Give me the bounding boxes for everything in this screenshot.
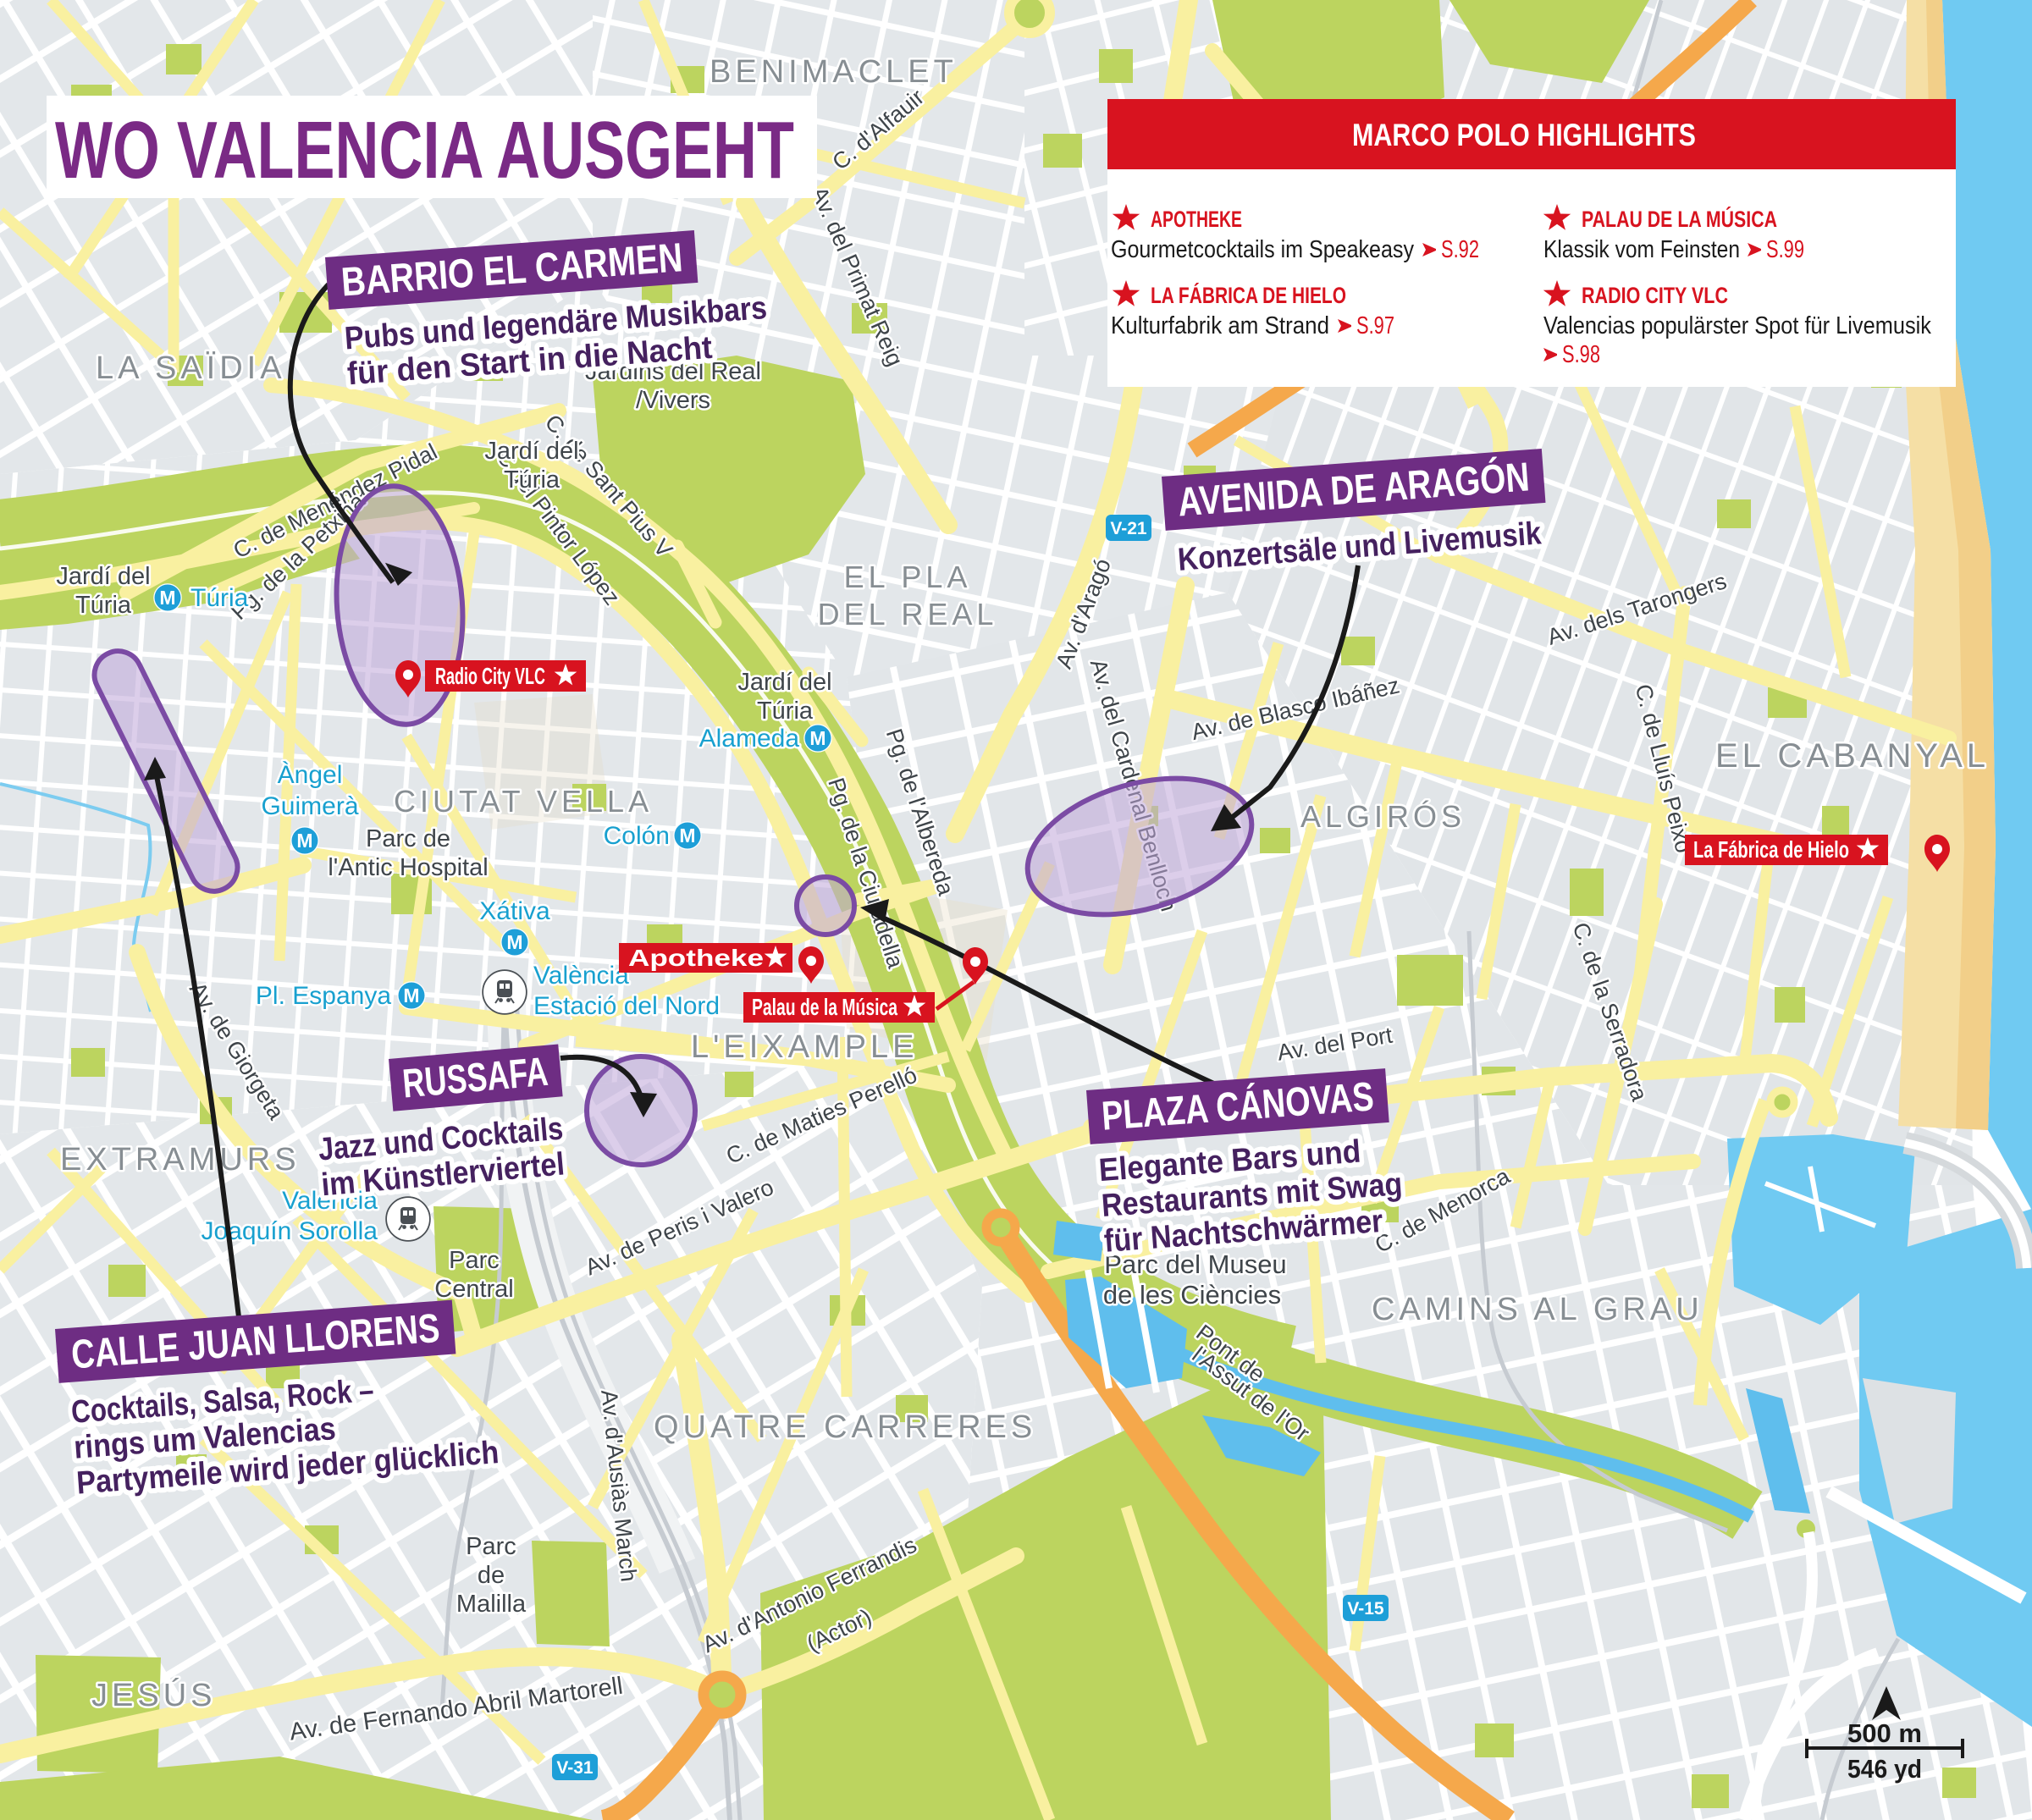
svg-text:LA SAÏDIA: LA SAÏDIA [96,350,286,386]
svg-text:Túria: Túria [190,584,249,612]
svg-text:CAMINS AL GRAU: CAMINS AL GRAU [1372,1292,1703,1327]
svg-text:Kulturfabrik am Strand: Kulturfabrik am Strand [1111,312,1329,339]
svg-text:APOTHEKE: APOTHEKE [1151,207,1242,232]
svg-text:Parc de: Parc de [366,825,450,852]
svg-text:La Fábrica de Hielo: La Fábrica de Hielo [1693,836,1849,863]
svg-text:Klassik vom Feinsten: Klassik vom Feinsten [1543,236,1740,263]
svg-text:Túria: Túria [757,698,814,725]
svg-text:S.97: S.97 [1356,312,1394,339]
svg-text:Valencias populärster Spot für: Valencias populärster Spot für Livemusik [1543,312,1931,339]
svg-text:Túria: Túria [504,466,560,494]
svg-text:QUATRE CARRERES: QUATRE CARRERES [654,1409,1036,1445]
svg-text:Estació del Nord: Estació del Nord [533,992,720,1020]
svg-text:Central: Central [434,1276,514,1303]
svg-text:Xátiva: Xátiva [479,897,550,925]
svg-text:Parc: Parc [449,1247,500,1274]
svg-text:546 yd: 546 yd [1847,1754,1922,1784]
svg-text:EL PLA: EL PLA [844,560,972,594]
svg-text:de: de [478,1562,505,1589]
svg-text:EXTRAMURS: EXTRAMURS [60,1142,301,1177]
svg-text:l'Antic Hospital: l'Antic Hospital [328,854,488,881]
svg-text:Túria: Túria [75,592,132,619]
svg-text:500 m: 500 m [1847,1718,1922,1748]
svg-text:Jardí del: Jardí del [737,669,831,696]
svg-text:CIUTAT VELLA: CIUTAT VELLA [394,784,653,819]
svg-text:V-21: V-21 [1110,519,1147,538]
svg-text:V-15: V-15 [1347,1599,1384,1619]
svg-text:Pl. Espanya: Pl. Espanya [256,982,391,1010]
svg-text:Malilla: Malilla [456,1591,527,1618]
svg-text:EL CABANYAL: EL CABANYAL [1715,737,1990,775]
svg-text:BENIMACLET: BENIMACLET [710,54,958,90]
svg-text:LA FÁBRICA DE HIELO: LA FÁBRICA DE HIELO [1151,282,1346,308]
svg-text:L'EIXAMPLE: L'EIXAMPLE [691,1029,918,1065]
svg-text:RADIO CITY VLC: RADIO CITY VLC [1582,283,1728,308]
svg-text:Apotheke: Apotheke [628,945,764,971]
svg-text:Parc: Parc [466,1533,516,1560]
svg-text:Alameda: Alameda [699,725,800,753]
svg-text:DEL REAL: DEL REAL [818,597,998,631]
svg-text:JESÚS: JESÚS [91,1677,216,1713]
svg-text:Palau de la Música: Palau de la Música [752,994,897,1020]
svg-text:/Vivers: /Vivers [636,387,710,414]
svg-text:MARCO POLO HIGHLIGHTS: MARCO POLO HIGHLIGHTS [1352,118,1696,152]
svg-text:de les Ciències: de les Ciències [1103,1280,1281,1310]
svg-text:Àngel: Àngel [278,761,343,789]
svg-text:Jardí del: Jardí del [56,563,150,590]
svg-text:S.99: S.99 [1766,236,1804,263]
svg-text:València: València [533,962,629,990]
svg-text:S.92: S.92 [1441,236,1479,263]
svg-text:S.98: S.98 [1562,341,1600,368]
svg-text:ALGIRÓS: ALGIRÓS [1300,799,1466,834]
svg-text:Gourmetcocktails im Speakeasy: Gourmetcocktails im Speakeasy [1111,236,1414,263]
svg-text:Colón: Colón [604,822,670,850]
svg-text:WO VALENCIA AUSGEHT: WO VALENCIA AUSGEHT [55,105,794,196]
svg-text:V-31: V-31 [556,1758,594,1778]
svg-text:Jardí del: Jardí del [484,438,578,465]
svg-text:Radio City VLC: Radio City VLC [435,663,545,689]
svg-text:Guimerà: Guimerà [261,792,358,820]
svg-text:PALAU DE LA MÚSICA: PALAU DE LA MÚSICA [1582,206,1777,232]
